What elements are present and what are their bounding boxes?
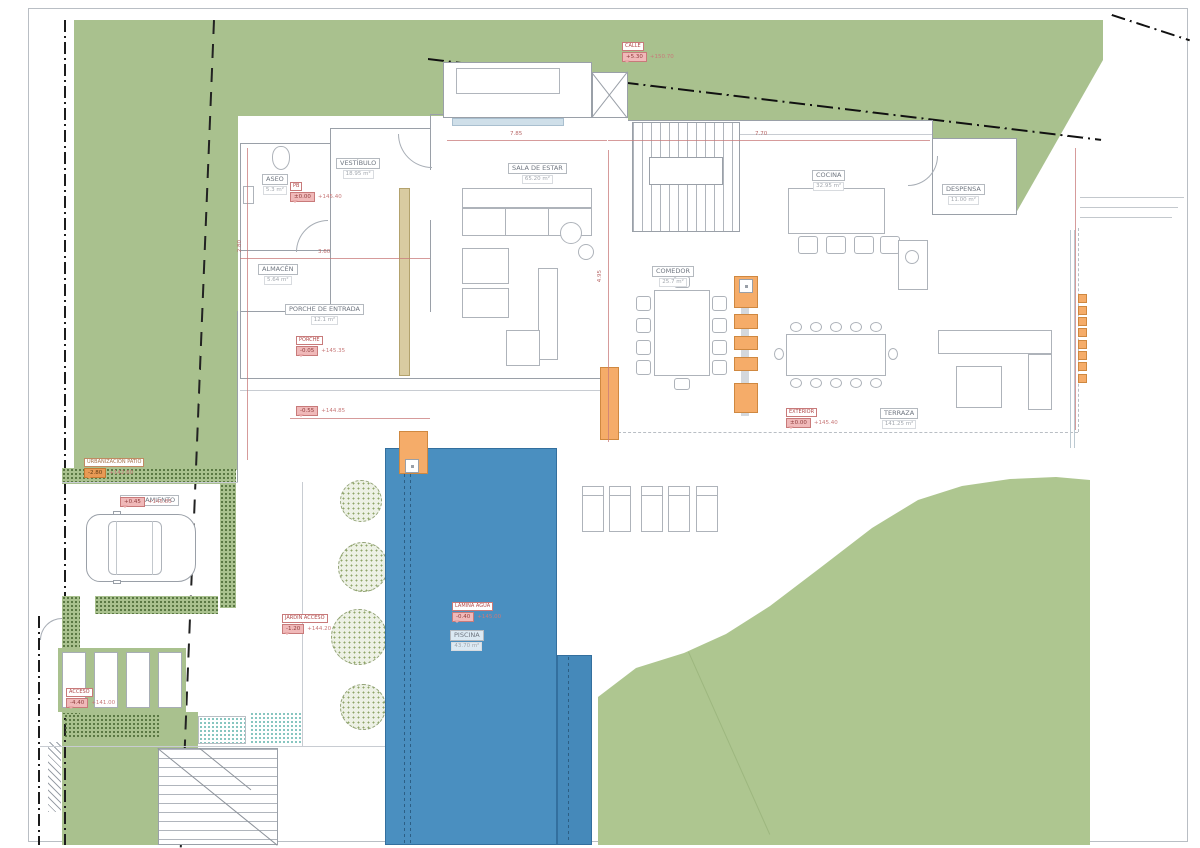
glazing-strip (452, 118, 564, 126)
room-label-almacen: ALMACÉN 5.64 m² (258, 256, 298, 285)
trellis-cell (126, 652, 150, 708)
wall (430, 114, 431, 129)
room-label-cocina: COCINA 32.95 m² (812, 162, 845, 191)
round-side-table (578, 244, 594, 260)
dimension-line (1075, 148, 1076, 430)
chaise (506, 330, 540, 366)
level-badge-acceso: ACCESO -4.40+141.00 (66, 678, 115, 708)
dimension-line (447, 140, 607, 141)
terrace-edge-line (240, 378, 610, 379)
orange-louver-block (1078, 317, 1087, 326)
orange-pillar (600, 367, 619, 440)
dimension-line (608, 150, 609, 442)
terrace-chair (870, 378, 882, 388)
room-label-despensa: DESPENSA 11.00 m² (942, 176, 985, 205)
room-label-piscina: PISCINA 43.70 m² (450, 622, 484, 651)
wall (330, 128, 331, 312)
wall (240, 311, 241, 379)
pool-overflow-channel-line (404, 450, 405, 843)
level-badge-terraza: EXTERIOR ±0.00+145.40 (786, 398, 838, 428)
terrace-chair (850, 322, 862, 332)
upper-volume-outline (443, 62, 592, 118)
sun-lounger (641, 486, 663, 532)
orange-louver-block (1078, 351, 1087, 360)
pool-overflow-channel-line (410, 450, 411, 843)
paving-line (240, 390, 608, 391)
terrace-coffee-table (956, 366, 1002, 408)
sink-fixture (905, 250, 919, 264)
armchair (462, 248, 509, 284)
terrace-chair (810, 378, 822, 388)
orange-wall-block (734, 383, 758, 413)
terrace-boundary-dashed (618, 432, 1078, 433)
terrace-sofa (1028, 354, 1052, 410)
room-label-sala: SALA DE ESTAR 65.20 m² (508, 155, 567, 184)
sofa-divider (548, 208, 549, 236)
skylight-outline (456, 68, 560, 94)
orange-louver-block (1078, 306, 1087, 315)
sun-lounger (609, 486, 631, 532)
terrace-chair (830, 322, 842, 332)
wall (330, 128, 430, 129)
retaining-step-line (1080, 207, 1178, 208)
stool (826, 236, 846, 254)
orange-louver-block (1078, 374, 1087, 383)
sun-lounger (668, 486, 690, 532)
sun-lounger (582, 486, 604, 532)
orange-louver-block (1078, 328, 1087, 337)
garden-area-top (238, 20, 443, 116)
path-line (40, 746, 385, 747)
orange-wall-block (734, 336, 758, 350)
wall (430, 220, 431, 312)
armchair (462, 288, 509, 318)
dimension-label: 4.95 (598, 270, 604, 282)
garden-area-left (74, 20, 238, 470)
sofa-back (462, 188, 592, 208)
garden-area-top-right (1016, 20, 1103, 60)
pool-lane-line (568, 657, 569, 843)
kitchen-counter (898, 240, 928, 290)
tree-circle (340, 480, 382, 522)
site-plan-canvas: 7.85 7.70 4.95 2.80 3.60 ASEO 5.3 m² VES… (0, 0, 1200, 848)
level-badge-jardin: JARDÍN ACCESO -1.20+144.20 (282, 604, 331, 634)
main-stairs (632, 122, 740, 232)
dimension-label: 3.60 (318, 250, 330, 256)
dimension-line (247, 148, 248, 460)
dimension-label: 7.70 (755, 132, 767, 138)
dimension-label: 2.80 (238, 240, 244, 252)
kitchen-island (788, 188, 885, 234)
terrace-chair (888, 348, 898, 360)
dining-chair (712, 296, 727, 311)
dining-chair (636, 296, 651, 311)
wall (932, 138, 1016, 139)
room-label-porche: PORCHE DE ENTRADA 12.1 m² (285, 296, 364, 325)
garden-area-top (443, 20, 592, 62)
wall (240, 143, 330, 144)
plot-boundary-line-left-lower (38, 616, 40, 845)
dining-chair (636, 360, 651, 375)
stool (880, 236, 900, 254)
planting-bed-teal (198, 716, 246, 744)
stair-landing (649, 157, 723, 185)
level-badge-piscina: LÁMINA AGUA -0.40+145.00 (452, 592, 501, 622)
terrace-chair (790, 378, 802, 388)
garden-wall-line (237, 311, 238, 482)
terrace-chair (830, 378, 842, 388)
pool-extension (557, 655, 592, 845)
level-badge-aparcamiento: +0.45+145.85 (120, 497, 172, 507)
dining-chair (712, 340, 727, 355)
wall (1016, 138, 1017, 215)
wall (628, 120, 932, 121)
dining-chair (712, 318, 727, 333)
level-badge-porche: PORCHE -0.05+145.35 (296, 326, 345, 356)
column-marker (739, 279, 753, 293)
hedge-planting-bed (95, 596, 218, 614)
level-badge-patio: URBANIZACIÓN PATIO -2.80+142.60 (84, 448, 144, 478)
orange-louver-block (1078, 294, 1087, 303)
terrace-chair (870, 322, 882, 332)
console-cabinet (538, 268, 558, 360)
feature-wall-tan (399, 188, 410, 376)
trellis-cell (158, 652, 182, 708)
dining-table (654, 290, 710, 376)
channel-line (1070, 230, 1071, 448)
room-label-comedor: COMEDOR 25.7 m² (652, 258, 694, 287)
dining-chair (712, 360, 727, 375)
terrace-dining-table (786, 334, 886, 376)
shrub-row (64, 714, 160, 738)
terrace-chair (850, 378, 862, 388)
dining-chair (674, 378, 690, 390)
sofa-divider (505, 208, 506, 236)
planting-bed-teal (250, 712, 302, 744)
column-marker (405, 459, 419, 473)
tree-circle (338, 542, 388, 592)
terrace-sofa (938, 330, 1052, 354)
wall (932, 138, 933, 215)
retaining-step-line (1080, 217, 1172, 218)
wall (932, 120, 933, 138)
sink-fixture (243, 186, 254, 204)
orange-louver-block (1078, 340, 1087, 349)
orange-wall-block (734, 314, 758, 329)
level-badge-acera: -0.55+144.85 (296, 406, 345, 416)
orange-louver-block (1078, 362, 1087, 371)
kitchen-counter-line (740, 134, 932, 135)
level-badge-planta-baja: PB ±0.00+145.40 (290, 172, 342, 202)
sun-lounger (696, 486, 718, 532)
terrace-chair (790, 322, 802, 332)
room-label-aseo: ASEO 5.3 m² (262, 166, 288, 195)
retaining-step-line (1080, 197, 1184, 198)
car (86, 514, 196, 582)
terrace-chair (774, 348, 784, 360)
hedge-planting-bed (220, 484, 236, 608)
retaining-wall-hatch (48, 742, 61, 812)
dimension-line (290, 418, 430, 419)
wall (932, 214, 1017, 215)
wall (240, 143, 241, 312)
tree-circle (331, 609, 387, 665)
stool (798, 236, 818, 254)
dimension-label: 7.85 (510, 132, 522, 138)
tree-circle (340, 684, 386, 730)
round-side-table (560, 222, 582, 244)
terrace-chair (810, 322, 822, 332)
room-label-vestibulo: VESTÍBULO 18.95 m² (336, 150, 380, 179)
dimension-line (608, 140, 930, 141)
dining-chair (636, 318, 651, 333)
room-label-terraza: TERRAZA 141.25 m² (880, 400, 918, 429)
stool (854, 236, 874, 254)
dining-chair (636, 340, 651, 355)
level-badge-calle: CALLE +5.30+150.70 (622, 32, 674, 62)
orange-wall-block (734, 357, 758, 371)
